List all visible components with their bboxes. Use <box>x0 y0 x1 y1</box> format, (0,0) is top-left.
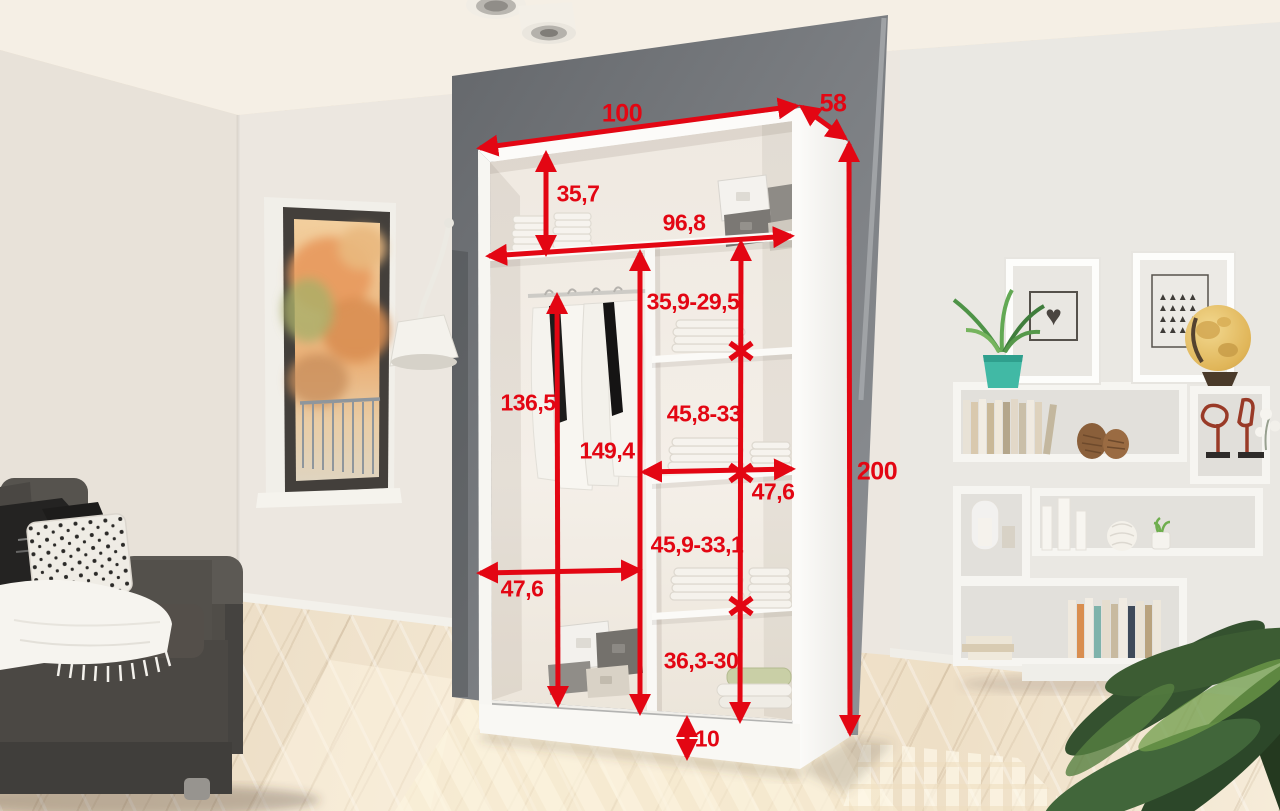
towel-stack-compartment-4 <box>717 668 792 708</box>
dimension-line-total-height <box>849 144 850 733</box>
dimension-label-interior-height: 149,4 <box>579 440 634 463</box>
dimension-label-total-width: 100 <box>602 102 642 127</box>
wardrobe-frame-left <box>478 150 492 730</box>
dimension-label-hanging-width: 47,6 <box>501 578 544 601</box>
dimension-label-shelf-gap-2: 45,8-33 <box>667 403 742 426</box>
dimension-label-top-compartment: 35,7 <box>557 183 600 206</box>
svg-text:▲▲▲▲: ▲▲▲▲ <box>1158 303 1198 314</box>
dimension-label-inner-width: 96,8 <box>663 212 706 235</box>
dimension-label-total-height: 200 <box>857 460 897 485</box>
sofa-leg <box>184 778 210 800</box>
dimension-line-right-shelf-width <box>644 469 792 472</box>
dimension-label-shelf-gap-4: 36,3-30 <box>664 650 739 673</box>
ceiling-spotlight-2 <box>518 2 576 44</box>
wardrobe-frame-right <box>792 120 800 769</box>
svg-text:▲▲▲: ▲▲▲ <box>1158 325 1188 336</box>
dimension-label-plinth-height: 10 <box>695 728 720 751</box>
storage-boxes-bottom <box>548 621 643 698</box>
dimension-label-shelf-gap-3: 45,9-33,1 <box>651 534 744 557</box>
window <box>256 197 402 508</box>
books-row3 <box>1068 598 1161 658</box>
dimension-label-hanging-height: 136,5 <box>500 392 555 415</box>
paper-lantern <box>1107 521 1137 551</box>
dimension-label-right-shelf-width: 47,6 <box>752 481 795 504</box>
svg-text:▲▲▲▲: ▲▲▲▲ <box>1158 292 1198 303</box>
wardrobe-side-panel <box>800 108 851 769</box>
dimension-line-hanging-width <box>480 570 639 573</box>
dimension-line-hanging-height <box>557 296 558 704</box>
wardrobe-dimension-diagram: { "title": "Open sliding wardrobe with d… <box>0 0 1280 811</box>
dimension-label-shelf-gap-1: 35,9-29,5 <box>647 291 740 314</box>
dimension-label-total-depth: 58 <box>820 92 847 117</box>
dimension-line-shelf-column <box>740 243 741 720</box>
stacked-books <box>962 636 1014 660</box>
heart-artwork: ♥ <box>1045 300 1062 331</box>
